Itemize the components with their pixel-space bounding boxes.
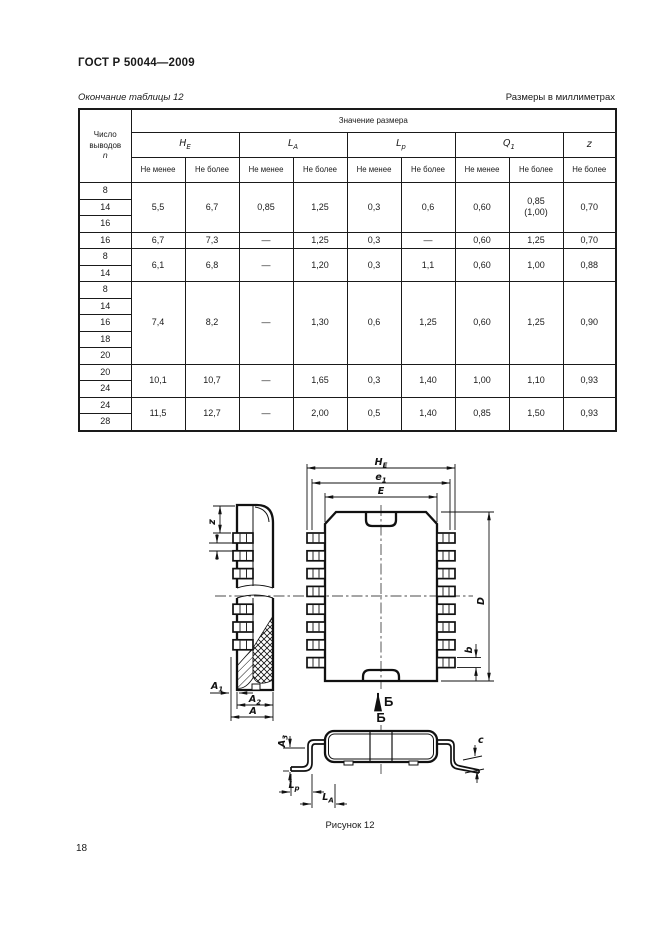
- value-cell: 1,25: [509, 232, 563, 249]
- value-cell: 0,93: [563, 397, 616, 431]
- value-cell: 5,5: [131, 183, 185, 233]
- table-row: 20 10,1 10,7 — 1,65 0,3 1,40 1,00 1,10 0…: [79, 364, 616, 381]
- value-cell: 1,40: [401, 364, 455, 397]
- symbol-cell-la: LA: [239, 133, 347, 158]
- table-row: 8 6,1 6,8 — 1,20 0,3 1,1 0,60 1,00 0,88: [79, 249, 616, 266]
- table-row: 24 11,5 12,7 — 2,00 0,5 1,40 0,85 1,50 0…: [79, 397, 616, 414]
- figure-caption: Рисунок 12: [195, 820, 505, 831]
- value-cell: 7,4: [131, 282, 185, 365]
- value-cell: 1,40: [401, 397, 455, 431]
- dimension-table: Число выводовn Значение размера HE LA Lp…: [78, 108, 617, 432]
- value-cell: —: [401, 232, 455, 249]
- dim-label-a1: A1: [210, 681, 223, 694]
- minmax-cell: Не более: [293, 158, 347, 183]
- pins-header-cell: Число выводовn: [79, 109, 131, 183]
- dim-label-D: D: [476, 597, 487, 605]
- section-label: Б: [376, 710, 385, 725]
- value-cell: 6,1: [131, 249, 185, 282]
- standard-number: ГОСТ Р 50044—2009: [78, 57, 195, 69]
- minmax-cell: Не более: [563, 158, 616, 183]
- pin-count-cell: 16: [79, 315, 131, 332]
- dim-label-he: HE: [375, 457, 388, 470]
- view-arrow-label: Б: [384, 694, 393, 709]
- value-cell: 6,7: [185, 183, 239, 233]
- pin-count-cell: 24: [79, 381, 131, 398]
- figure-12-drawing: HE e1 E D b Б: [195, 450, 505, 815]
- value-cell: 0,3: [347, 183, 401, 233]
- pin-count-cell: 20: [79, 364, 131, 381]
- dim-label-a: A: [248, 706, 256, 717]
- value-cell: 8,2: [185, 282, 239, 365]
- minmax-cell: Не менее: [239, 158, 293, 183]
- document-page: { "page": { "standard": "ГОСТ Р 50044—20…: [0, 0, 661, 936]
- table-row: 8 7,4 8,2 — 1,30 0,6 1,25 0,60 1,25 0,90: [79, 282, 616, 299]
- dim-label-z: z: [207, 519, 218, 526]
- value-cell: 1,1: [401, 249, 455, 282]
- value-cell: 12,7: [185, 397, 239, 431]
- dim-label-E: E: [378, 486, 385, 497]
- table-meta-row: Окончание таблицы 12 Размеры в миллиметр…: [78, 92, 615, 103]
- value-cell: 0,60: [455, 232, 509, 249]
- dim-label-lp: Lp: [288, 780, 299, 793]
- value-cell: 0,3: [347, 232, 401, 249]
- symbol-cell-q1: Q1: [455, 133, 563, 158]
- value-cell: 0,70: [563, 232, 616, 249]
- value-cell: 0,3: [347, 364, 401, 397]
- value-cell: 1,00: [455, 364, 509, 397]
- units-note: Размеры в миллиметрах: [506, 92, 615, 103]
- dim-label-la: LA: [322, 792, 333, 805]
- symbol-cell-lp: Lp: [347, 133, 455, 158]
- value-cell: 0,88: [563, 249, 616, 282]
- pin-count-cell: 16: [79, 232, 131, 249]
- value-cell: 1,30: [293, 282, 347, 365]
- table-row: 8 5,5 6,7 0,85 1,25 0,3 0,6 0,60 0,85 (1…: [79, 183, 616, 200]
- value-cell: 0,60: [455, 183, 509, 233]
- minmax-cell: Не более: [185, 158, 239, 183]
- value-cell: 1,25: [293, 232, 347, 249]
- value-cell: 0,70: [563, 183, 616, 233]
- pin-count-cell: 16: [79, 216, 131, 233]
- table-row: 16 6,7 7,3 — 1,25 0,3 — 0,60 1,25 0,70: [79, 232, 616, 249]
- pin-count-cell: 14: [79, 298, 131, 315]
- value-cell: 0,3: [347, 249, 401, 282]
- value-cell: 1,25: [293, 183, 347, 233]
- value-cell: 0,90: [563, 282, 616, 365]
- pin-count-cell: 14: [79, 265, 131, 282]
- minmax-cell: Не более: [509, 158, 563, 183]
- value-cell: 1,50: [509, 397, 563, 431]
- value-header-cell: Значение размера: [131, 109, 616, 133]
- pins-header-symbol: n: [103, 151, 108, 160]
- minmax-cell: Не менее: [347, 158, 401, 183]
- pin-count-cell: 24: [79, 397, 131, 414]
- side-view: z A1 A2 A: [207, 505, 273, 721]
- value-cell: 2,00: [293, 397, 347, 431]
- value-cell: 1,00: [509, 249, 563, 282]
- value-cell: 1,10: [509, 364, 563, 397]
- value-cell: 6,7: [131, 232, 185, 249]
- value-cell: —: [239, 249, 293, 282]
- value-cell: 1,25: [401, 282, 455, 365]
- value-cell: 10,1: [131, 364, 185, 397]
- page-number: 18: [76, 843, 87, 854]
- pin-count-cell: 20: [79, 348, 131, 365]
- value-cell: —: [239, 364, 293, 397]
- pins-header-label: Число выводов: [89, 130, 121, 149]
- value-cell: 1,65: [293, 364, 347, 397]
- dim-label-a2: A2: [248, 694, 261, 707]
- dim-label-a3: A3: [277, 735, 290, 748]
- minmax-cell: Не более: [401, 158, 455, 183]
- pin-count-cell: 18: [79, 331, 131, 348]
- value-cell: 6,8: [185, 249, 239, 282]
- value-cell: 7,3: [185, 232, 239, 249]
- value-cell: 0,6: [347, 282, 401, 365]
- value-cell: 0,85: [239, 183, 293, 233]
- value-cell: 0,60: [455, 282, 509, 365]
- value-cell: 0,5: [347, 397, 401, 431]
- value-cell: —: [239, 282, 293, 365]
- pin-count-cell: 8: [79, 183, 131, 200]
- symbol-cell-he: HE: [131, 133, 239, 158]
- value-cell: 0,85: [455, 397, 509, 431]
- pin-count-cell: 8: [79, 282, 131, 299]
- left-pins: [307, 533, 325, 668]
- symbol-cell-z: z: [563, 133, 616, 158]
- value-cell: 0,6: [401, 183, 455, 233]
- dim-label-e1: e1: [375, 472, 386, 485]
- minmax-cell: Не менее: [131, 158, 185, 183]
- value-cell: 0,93: [563, 364, 616, 397]
- dim-label-c: c: [478, 735, 484, 746]
- pin-count-cell: 14: [79, 199, 131, 216]
- right-pins: [437, 533, 455, 668]
- value-cell: 1,25: [509, 282, 563, 365]
- value-cell: —: [239, 232, 293, 249]
- value-cell: 1,20: [293, 249, 347, 282]
- table-caption: Окончание таблицы 12: [78, 92, 184, 103]
- pin-count-cell: 28: [79, 414, 131, 431]
- value-cell: 0,85 (1,00): [509, 183, 563, 233]
- value-cell: 11,5: [131, 397, 185, 431]
- pin-count-cell: 8: [79, 249, 131, 266]
- dim-label-b: b: [464, 646, 475, 653]
- value-cell: —: [239, 397, 293, 431]
- value-cell: 10,7: [185, 364, 239, 397]
- side-pins: [233, 533, 253, 650]
- minmax-cell: Не менее: [455, 158, 509, 183]
- value-cell: 0,60: [455, 249, 509, 282]
- section-view: Б A3 Lp LA c: [277, 710, 484, 808]
